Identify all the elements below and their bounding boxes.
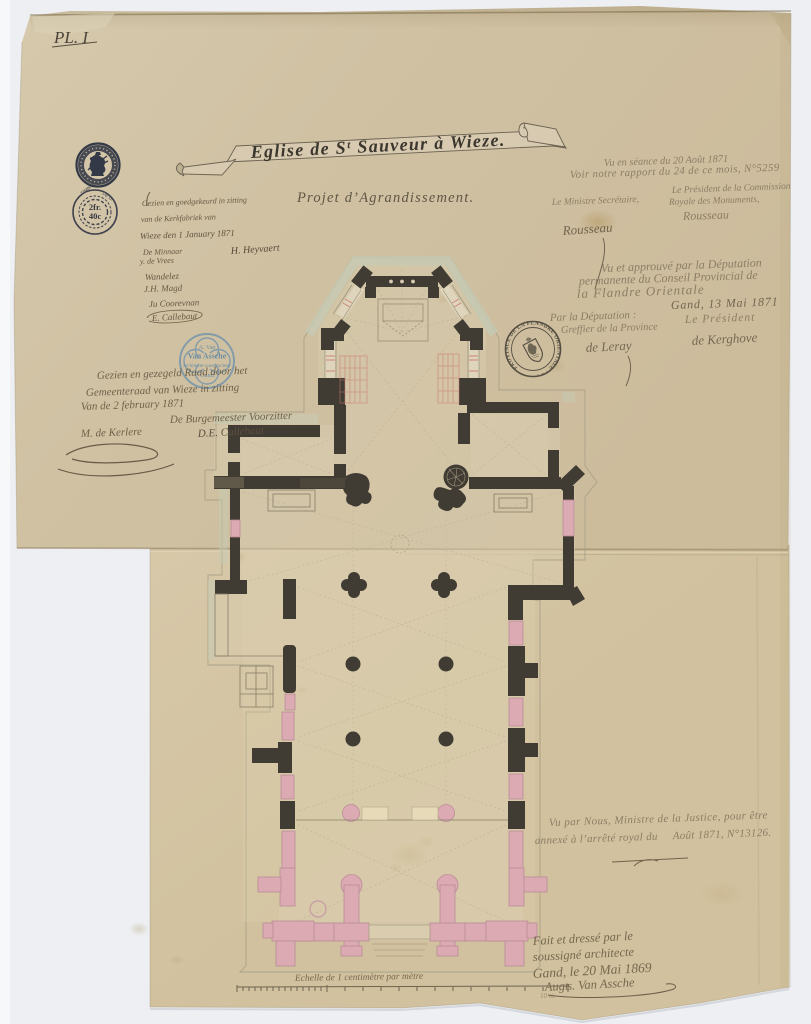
svg-text:y. de Vrees: y. de Vrees <box>139 256 174 266</box>
svg-text:de Leray: de Leray <box>585 338 632 355</box>
svg-text:PL. I: PL. I <box>53 28 89 47</box>
svg-text:10 m.: 10 m. <box>540 992 556 1000</box>
svg-text:Wandelez: Wandelez <box>145 271 180 282</box>
svg-text:M. de Kerlere: M. de Kerlere <box>80 426 142 440</box>
svg-text:Ju Coorevnan: Ju Coorevnan <box>149 297 200 309</box>
svg-text:Le Président: Le Président <box>684 312 756 326</box>
svg-text:A. Van: A. Van <box>199 345 216 351</box>
svg-text:Van Assche: Van Assche <box>188 352 227 361</box>
svg-text:Projet d’Agrandissement.: Projet d’Agrandissement. <box>296 190 474 206</box>
svg-text:40c: 40c <box>89 211 102 221</box>
svg-text:J.H. Magd: J.H. Magd <box>144 283 183 294</box>
svg-text:Rousseau: Rousseau <box>682 207 729 223</box>
